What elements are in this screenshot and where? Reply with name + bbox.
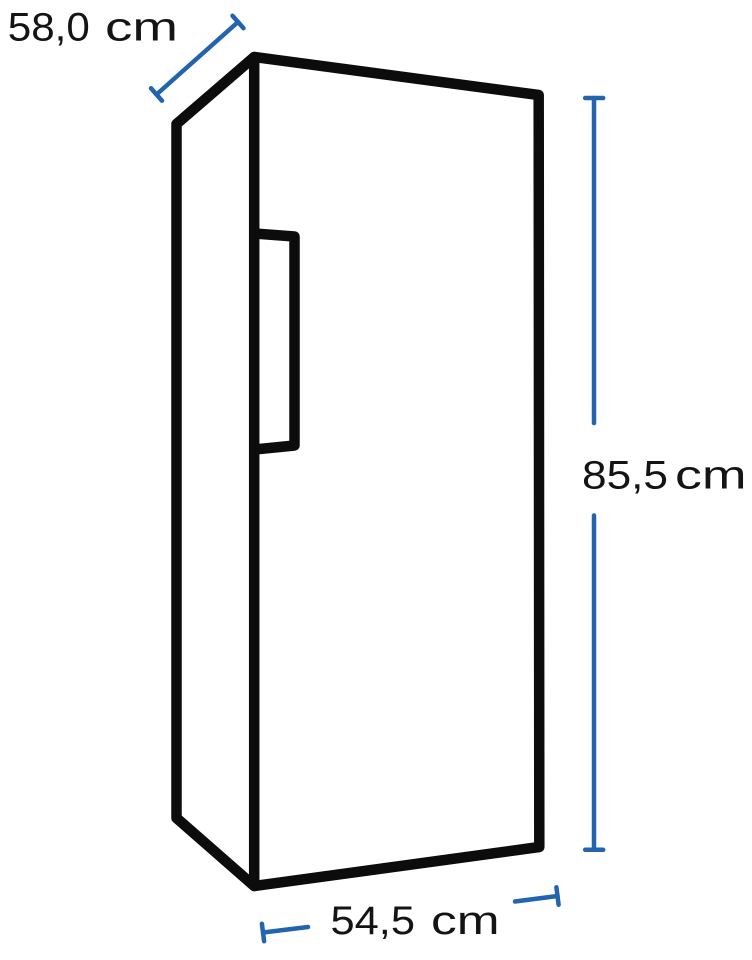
svg-text:58,0cm: 58,0cm (8, 6, 178, 50)
svg-text:85,5cm: 85,5cm (582, 454, 747, 498)
svg-text:54,5cm: 54,5cm (331, 899, 500, 943)
